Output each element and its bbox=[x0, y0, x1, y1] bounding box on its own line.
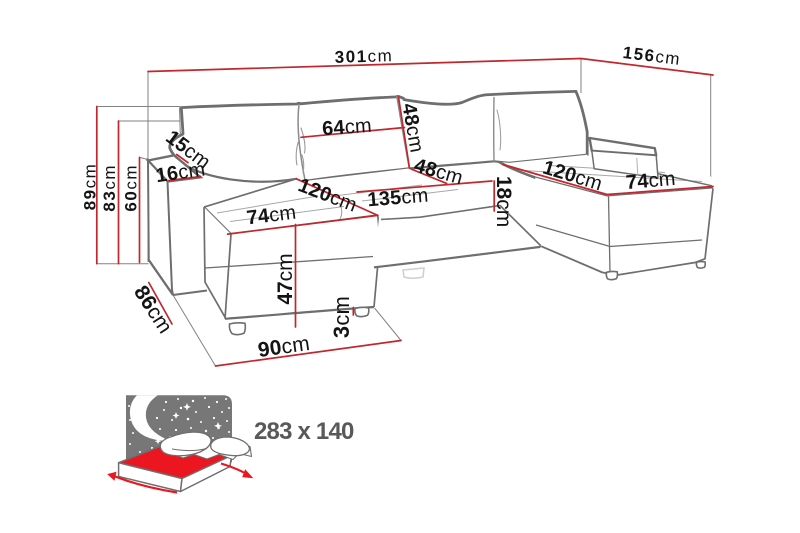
svg-text:64cm: 64cm bbox=[321, 115, 372, 140]
svg-text:18cm: 18cm bbox=[492, 176, 515, 227]
svg-text:3cm: 3cm bbox=[329, 296, 354, 338]
svg-text:89cm: 89cm bbox=[81, 163, 100, 211]
svg-text:283 x 140: 283 x 140 bbox=[254, 418, 354, 445]
svg-text:301cm: 301cm bbox=[334, 46, 393, 67]
svg-text:74cm: 74cm bbox=[625, 168, 676, 194]
svg-text:60cm: 60cm bbox=[122, 164, 141, 212]
svg-text:47cm: 47cm bbox=[274, 253, 297, 304]
svg-text:83cm: 83cm bbox=[100, 164, 119, 212]
